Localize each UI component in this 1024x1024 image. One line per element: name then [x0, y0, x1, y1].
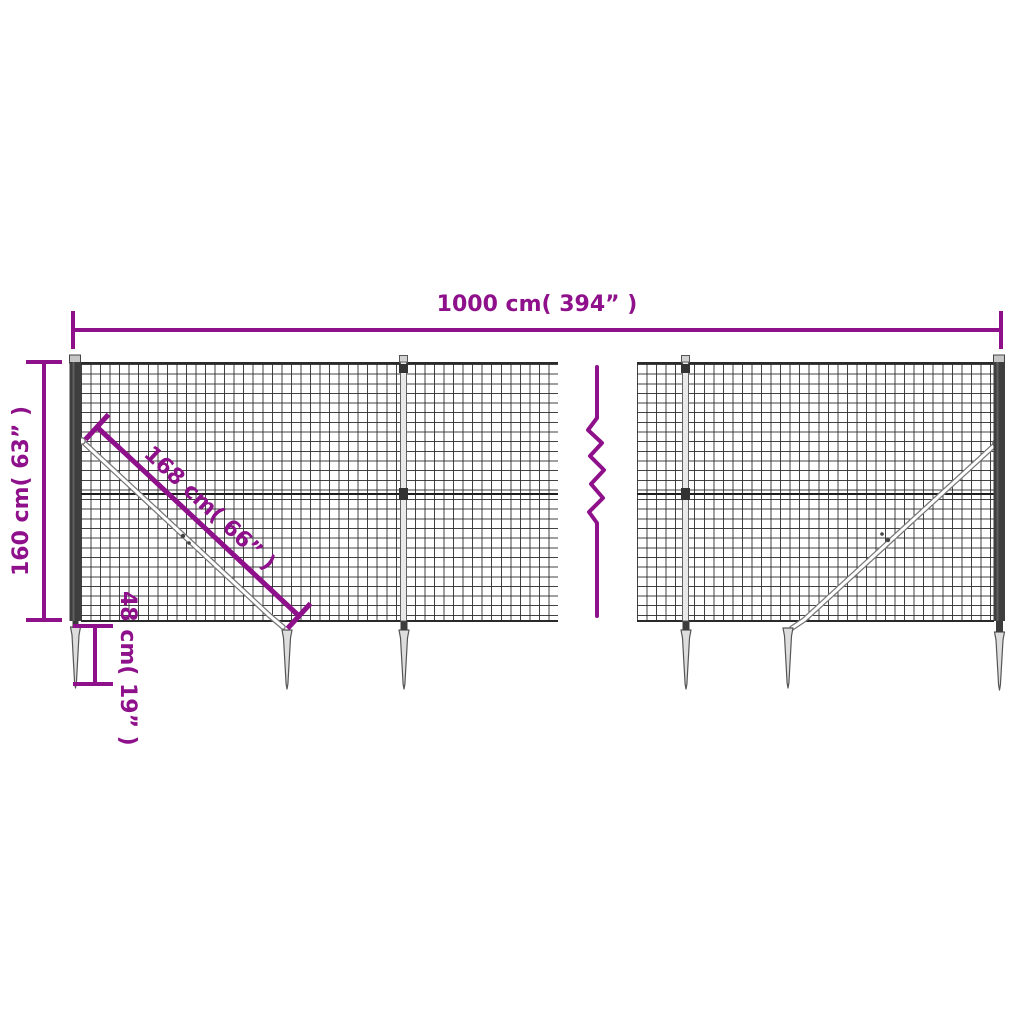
product-dimension-diagram: 1000 cm( 394” ) 160 cm( 63” ) 168 cm( 66… — [0, 0, 1024, 1024]
spike-connector — [73, 621, 1004, 632]
fence-post-icon — [70, 355, 82, 621]
fence-post-icon — [994, 355, 1006, 621]
fence-line-art — [0, 0, 1024, 1024]
diagonal-brace-icon — [792, 440, 999, 628]
break-zigzag-icon — [588, 367, 604, 616]
ground-spike-icon — [71, 627, 1005, 690]
width-dimension-label: 1000 cm( 394” ) — [387, 292, 687, 318]
fence-post-icon — [399, 356, 408, 622]
fence-post-icon — [681, 356, 690, 622]
anchor-depth-dimension-label: 48 cm( 19” ) — [114, 591, 140, 741]
height-dimension-label: 160 cm( 63” ) — [9, 371, 35, 611]
